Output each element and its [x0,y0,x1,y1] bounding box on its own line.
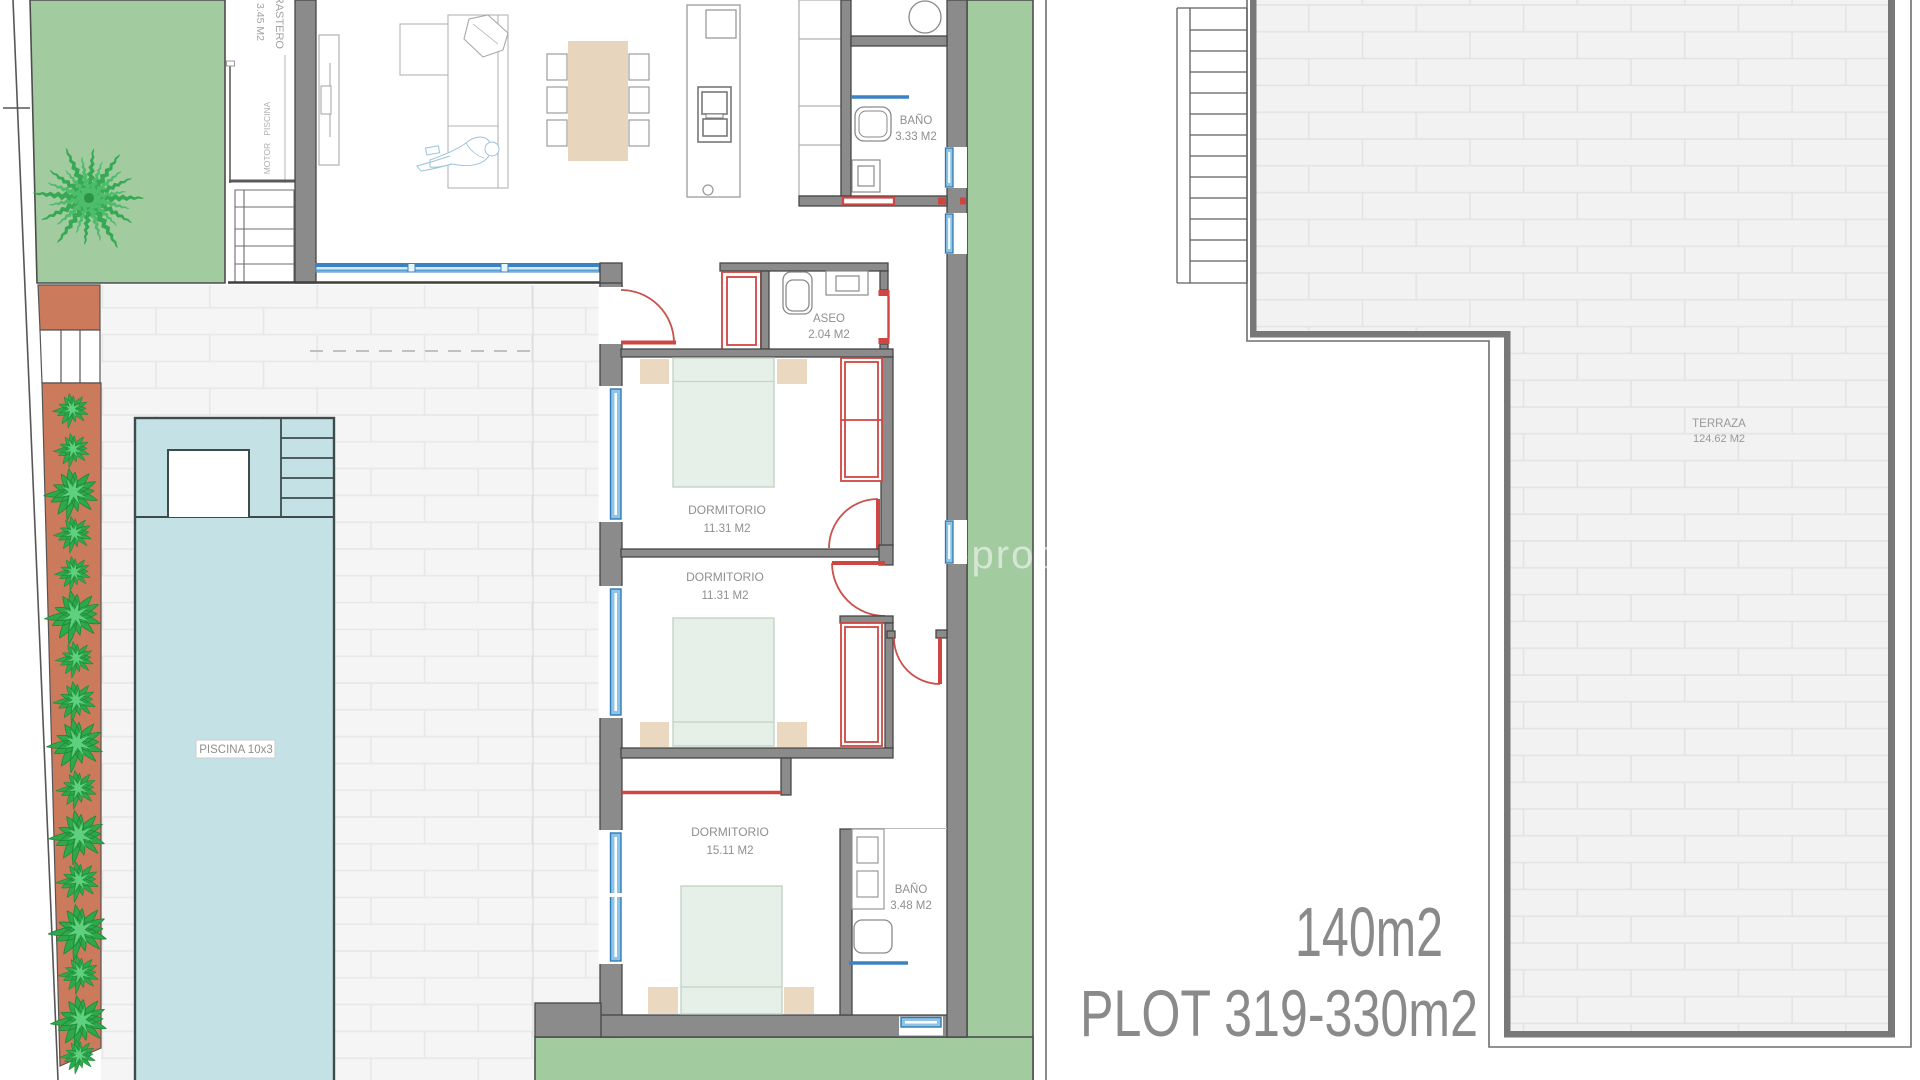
svg-text:3.48 M2: 3.48 M2 [890,900,932,912]
svg-text:11.31 M2: 11.31 M2 [701,590,748,602]
svg-text:15.11 M2: 15.11 M2 [706,845,753,857]
svg-text:3.45 M2: 3.45 M2 [254,3,266,41]
svg-text:2.04 M2: 2.04 M2 [808,329,850,341]
svg-text:PLOT 319-330m2: PLOT 319-330m2 [1080,976,1478,1050]
svg-text:ASEO: ASEO [813,313,845,325]
svg-text:DORMITORIO: DORMITORIO [688,503,766,517]
svg-text:BAÑO: BAÑO [895,883,928,896]
svg-text:PISCINA 10x3: PISCINA 10x3 [199,744,273,756]
svg-text:BAÑO: BAÑO [900,114,933,127]
svg-text:124.62 M2: 124.62 M2 [1693,433,1745,445]
svg-text:spain-properties: spain-properties [851,533,1170,577]
svg-text:TRASTERO: TRASTERO [273,0,285,49]
svg-text:TERRAZA: TERRAZA [1692,418,1746,430]
svg-text:11.31 M2: 11.31 M2 [703,523,750,535]
svg-text:DORMITORIO: DORMITORIO [691,825,769,839]
svg-text:3.33 M2: 3.33 M2 [895,131,937,143]
svg-text:140m2: 140m2 [1295,893,1443,971]
svg-text:MOTOR PISCINA: MOTOR PISCINA [262,101,272,174]
svg-text:DORMITORIO: DORMITORIO [686,570,764,584]
